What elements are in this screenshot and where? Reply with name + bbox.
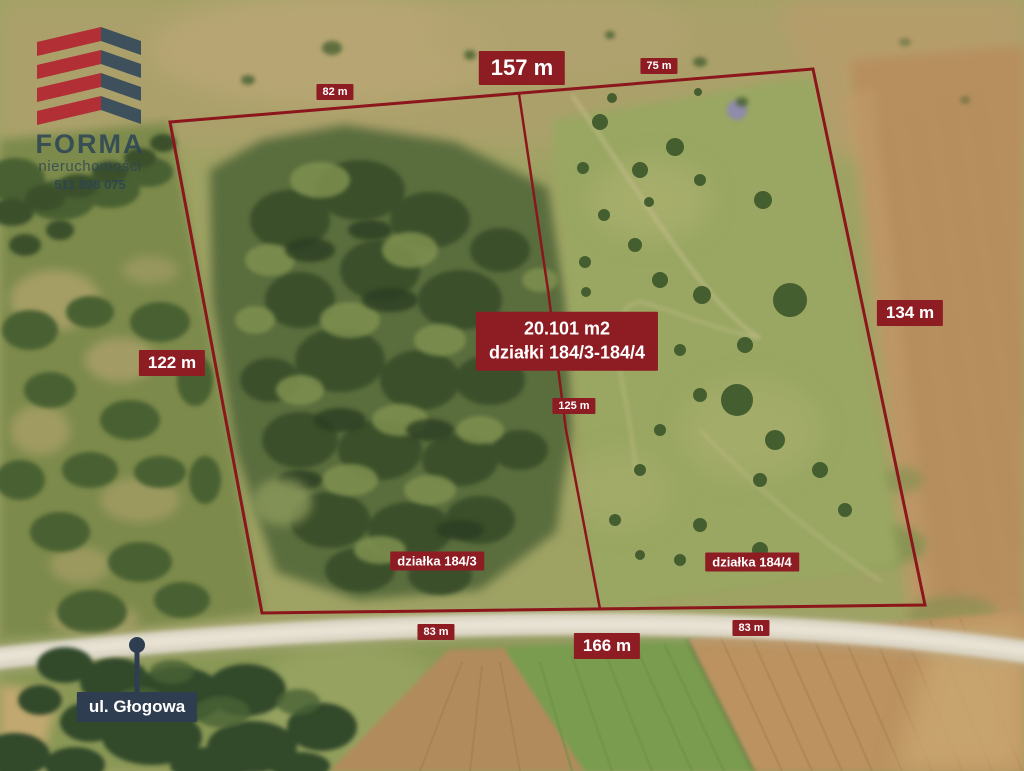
parcel-area-label: 20.101 m2 [489,317,645,341]
measurement-bottom-right: 83 m [732,620,769,636]
parcel-info-box: 20.101 m2 działki 184/3-184/4 [476,312,658,371]
measurement-right: 134 m [877,300,943,326]
brand-phone: 511 898 075 [8,177,172,192]
aerial-listing-image: 82 m 157 m 75 m 122 m 134 m 125 m 83 m 1… [0,0,1024,771]
measurement-left: 122 m [139,350,205,376]
logo: FORMA nieruchomości 511 898 075 [8,26,172,192]
measurement-top-left: 82 m [316,84,353,100]
measurement-middle: 125 m [552,398,595,414]
brand-name: FORMA [8,129,172,160]
measurement-bottom: 166 m [574,633,640,659]
measurement-bottom-left: 83 m [417,624,454,640]
measurement-top-right: 75 m [640,58,677,74]
plot-label-184-3: działka 184/3 [390,552,484,571]
measurement-top: 157 m [479,51,565,85]
street-label: ul. Głogowa [77,692,197,722]
logo-building-icon [35,26,145,126]
plot-label-184-4: działka 184/4 [705,553,799,572]
street-pin-icon [129,637,145,653]
brand-subtitle: nieruchomości [8,158,172,175]
parcel-plots-label: działki 184/3-184/4 [489,341,645,365]
